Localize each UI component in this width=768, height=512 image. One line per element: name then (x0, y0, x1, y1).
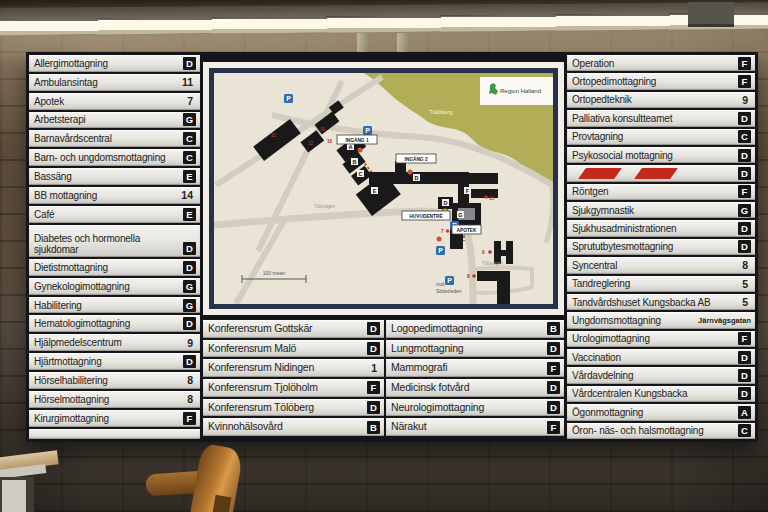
directory-row: BB mottagning14 (29, 187, 200, 204)
directory-row: Vårdcentralen KungsbackaD (567, 386, 755, 402)
house-letter-badge: D (738, 351, 751, 364)
bottom-left-column: Konferensrum GottskärDKonferensrum MalöD… (203, 320, 384, 436)
house-letter-badge: E (183, 170, 196, 183)
directory-row: VårdavdelningD (567, 367, 755, 383)
house-letter-badge: C (738, 424, 751, 437)
house-letter-badge: B (367, 421, 380, 434)
directory-row: Konferensrum TölöbergD (203, 399, 384, 417)
location-badge: 8 (187, 374, 196, 386)
house-letter-badge: D (183, 355, 196, 368)
house-letter-badge: D (183, 242, 196, 255)
svg-text:HUVUDENTRÉ: HUVUDENTRÉ (409, 212, 443, 219)
street-label: Tölövägen (482, 261, 504, 266)
directory-row: OrtopedimottagningF (567, 73, 755, 89)
entry-label: Ögonmottagning (572, 407, 738, 418)
svg-text:G: G (458, 212, 462, 218)
directory-row: RöntgenF (567, 184, 755, 200)
directory-row: Barn- och ungdomsmottagningC (29, 149, 200, 166)
entry-label: Ortopedimottagning (572, 76, 738, 87)
svg-text:P: P (447, 277, 452, 284)
entry-label: Diabetes och hormonella sjukdomar (34, 233, 183, 255)
house-letter-badge: D (738, 240, 751, 253)
entry-label: Medicinsk fotvård (391, 382, 547, 394)
entry-label: Tandvårdshuset Kungsbacka AB (572, 297, 742, 308)
entry-label: Barnavårdscentral (34, 133, 183, 144)
directory-row: ÖgonmottagningA (567, 404, 755, 420)
entrance1-label: INGÅNG 1 (337, 135, 377, 144)
entry-label: Ambulansintag (34, 77, 182, 88)
location-badge: 14 (181, 189, 196, 201)
house-letter-badge: D (738, 167, 751, 180)
location-badge: 8 (742, 259, 751, 271)
entry-label: Mammografi (391, 362, 547, 374)
entry-label: Syncentral (572, 260, 742, 271)
house-letter-badge: D (183, 57, 196, 70)
entry-label: BB mottagning (34, 190, 181, 201)
entry-label: Hjärtmottagning (34, 356, 183, 367)
location-badge: 5 (742, 278, 751, 290)
location-badge: 1 (371, 362, 380, 374)
entrance2-label: INGÅNG 2 (396, 154, 436, 163)
directory-row: D (567, 165, 755, 181)
house-letter-badge: F (183, 412, 196, 425)
house-letter-badge: G (183, 280, 196, 293)
directory-row: Palliativa konsultteametD (567, 110, 755, 126)
entry-label: Vårdavdelning (572, 370, 738, 381)
svg-text:11: 11 (271, 133, 276, 138)
pharmacy-marker: 7 (441, 229, 444, 234)
directory-row: ArbetsterapiG (29, 112, 200, 129)
house-letter-badge: F (738, 57, 751, 70)
directory-row: Konferensrum MalöD (203, 340, 384, 358)
house-letter-badge: D (738, 387, 751, 400)
logo-text: Region Halland (500, 88, 541, 94)
location-badge: 7 (187, 95, 196, 107)
directory-row: MammografiF (386, 359, 564, 377)
entry-label: Café (34, 209, 183, 220)
entry-label: Neurologimottagning (391, 402, 547, 414)
entry-label: Sjukgymnastik (572, 205, 738, 216)
house-letter-badge: D (738, 149, 751, 162)
directory-row: Hjälpmedelscentrum9 (29, 334, 200, 351)
house-letter-badge: C (183, 132, 196, 145)
directory-row: ProvtagningC (567, 129, 755, 145)
entry-label: Lungmottagning (391, 343, 547, 355)
house-letter-badge: G (738, 204, 751, 217)
directory-row: NeurologimottagningD (386, 399, 564, 417)
svg-text:P: P (286, 95, 291, 102)
directory-row: Syncentral8 (567, 257, 755, 273)
scale-label: 100 meter (263, 270, 286, 276)
entry-label: Barn- och ungdomsmottagning (34, 152, 183, 163)
svg-text:E: E (373, 188, 377, 194)
directory-row: SjukgymnastikG (567, 202, 755, 218)
directory-row: VaccinationD (567, 349, 755, 365)
directory-row: UrologimottagningF (567, 331, 755, 347)
house-letter-badge: D (183, 317, 196, 330)
house-letter-badge: F (738, 75, 751, 88)
site-map: A B C E D F D G P P P P (214, 73, 553, 304)
location-badge: 9 (187, 337, 196, 349)
house-letter-badge: F (367, 381, 380, 394)
svg-text:12: 12 (308, 141, 314, 146)
directory-row: OperationF (567, 55, 755, 71)
directory-row: Diabetes och hormonella sjukdomarD (29, 225, 200, 257)
directory-row: KvinnohälsovårdB (203, 418, 384, 436)
location-badge: 9 (742, 94, 751, 106)
directory-row: Medicinsk fotvårdD (386, 379, 564, 397)
entry-label: Bassäng (34, 171, 183, 182)
svg-text:15: 15 (489, 196, 495, 201)
entry-label: Logopedimottagning (391, 323, 547, 335)
house-letter-badge: D (738, 112, 751, 125)
directory-row: Tandreglering5 (567, 276, 755, 292)
entry-label: Psykosocial mottagning (572, 150, 738, 161)
directory-row: Konferensrum GottskärD (203, 320, 384, 338)
directory-row: Ortopedteknik9 (567, 92, 755, 108)
entry-label: Ungdomsmottagning (572, 315, 698, 326)
left-column: AllergimottagningDAmbulansintag11Apotek7… (29, 55, 200, 439)
hill-label: Tölöberg (429, 109, 453, 115)
house-letter-badge: D (547, 342, 560, 355)
entry-label: Röntgen (572, 186, 738, 197)
directory-row: Ambulansintag11 (29, 74, 200, 91)
region-halland-logo: Region Halland (480, 77, 553, 105)
svg-text:APOTEK: APOTEK (457, 228, 478, 233)
entry-label: Arbetsterapi (34, 114, 183, 125)
entry-label: Öron- näs- och halsmottagning (572, 425, 738, 436)
directory-board: AllergimottagningDAmbulansintag11Apotek7… (26, 52, 758, 442)
house-letter-badge: F (547, 362, 560, 375)
entry-label: Konferensrum Nidingen (208, 362, 371, 374)
svg-text:16: 16 (327, 139, 333, 144)
house-letter-badge: E (183, 208, 196, 221)
pharmacy-label: APOTEK (452, 225, 481, 234)
hazard-stripes (634, 168, 678, 179)
location-badge: 11 (182, 76, 196, 88)
hazard-stripes (578, 168, 622, 179)
entry-label: Dietistmottagning (34, 262, 183, 273)
directory-row: UngdomsmottagningJärnvägsgatan (567, 312, 755, 328)
entry-label: Vaccination (572, 352, 738, 363)
house-letter-badge: D (183, 261, 196, 274)
entry-label: Operation (572, 58, 738, 69)
svg-text:B: B (353, 159, 357, 165)
entry-label: Ortopedteknik (572, 94, 742, 105)
house-letter-badge: D (367, 322, 380, 335)
directory-row (29, 429, 200, 439)
entry-label: Hematologimottagning (34, 318, 183, 329)
directory-row: SjukhusadministrationenD (567, 220, 755, 236)
entry-label: Närakut (391, 421, 547, 433)
house-letter-badge: D (547, 401, 560, 414)
house-letter-badge: G (183, 299, 196, 312)
directory-row: HjärtmottagningD (29, 353, 200, 370)
house-letter-badge: C (738, 130, 751, 143)
svg-text:INGÅNG 1: INGÅNG 1 (345, 137, 369, 143)
directory-row: Apotek7 (29, 93, 200, 110)
entry-label: Konferensrum Tjolöholm (208, 382, 367, 394)
location-badge: 8 (187, 393, 196, 405)
house-letter-badge: F (738, 185, 751, 198)
entry-label: Konferensrum Malö (208, 343, 367, 355)
entry-label: Gynekologimottagning (34, 281, 183, 292)
svg-text:D: D (444, 200, 448, 206)
svg-text:9: 9 (482, 250, 485, 255)
svg-text:10: 10 (320, 127, 326, 132)
svg-text:C: C (359, 171, 363, 177)
house-letter-badge: C (183, 151, 196, 164)
svg-text:P: P (365, 127, 370, 134)
svg-text:P: P (438, 247, 443, 254)
house-letter-badge: F (547, 421, 560, 434)
entry-label: Tandreglering (572, 278, 742, 289)
entry-label: Sprututbytesmottagning (572, 241, 738, 252)
directory-row: Konferensrum Nidingen1 (203, 359, 384, 377)
house-letter-badge: G (183, 113, 196, 126)
directory-row: AllergimottagningD (29, 55, 200, 72)
house-letter-badge: F (738, 332, 751, 345)
entry-label: Apotek (34, 96, 187, 107)
directory-row: SprututbytesmottagningD (567, 239, 755, 255)
entry-label: Allergimottagning (34, 58, 183, 69)
svg-text:INGÅNG 2: INGÅNG 2 (404, 156, 428, 162)
street-label: Tölövägen (314, 204, 336, 209)
directory-row: LungmottagningD (386, 340, 564, 358)
entry-label: Habilitering (34, 300, 183, 311)
entry-label: Hjälpmedelscentrum (34, 337, 187, 348)
svg-text:D: D (415, 175, 419, 181)
house-letter-badge: B (547, 322, 560, 335)
house-letter-badge: D (367, 401, 380, 414)
location-badge: 5 (742, 296, 751, 308)
house-letter-badge: D (738, 222, 751, 235)
entry-label: Hörselhabilitering (34, 375, 187, 386)
directory-row: Hörselhabilitering8 (29, 372, 200, 389)
table-drawer (2, 480, 26, 512)
directory-row: Konferensrum TjolöholmF (203, 379, 384, 397)
directory-row: BarnavårdscentralC (29, 130, 200, 147)
directory-row: NärakutF (386, 418, 564, 436)
house-letter-badge: D (367, 342, 380, 355)
direction-label: Söderleden (436, 288, 462, 294)
location-badge: Järnvägsgatan (698, 316, 751, 325)
directory-row: Hörselmottagning8 (29, 391, 200, 408)
entry-label: Kvinnohälsovård (208, 421, 367, 433)
site-map-panel: A B C E D F D G P P P P (203, 62, 564, 315)
directory-row: DietistmottagningD (29, 259, 200, 276)
electrical-box (688, 2, 734, 27)
entry-label: Vårdcentralen Kungsbacka (572, 388, 738, 399)
direction-label: mot (436, 281, 445, 287)
right-column: OperationFOrtopedimottagningFOrtopedtekn… (567, 55, 755, 439)
directory-row: BassängE (29, 168, 200, 185)
entry-label: Hörselmottagning (34, 394, 187, 405)
entry-label: Kirurgimottagning (34, 413, 183, 424)
entry-label: Palliativa konsultteamet (572, 113, 738, 124)
directory-row: HabiliteringG (29, 297, 200, 314)
entry-label: Provtagning (572, 131, 738, 142)
entry-label: Konferensrum Gottskär (208, 323, 367, 335)
directory-row: GynekologimottagningG (29, 278, 200, 295)
photo-scene: AllergimottagningDAmbulansintag11Apotek7… (0, 0, 768, 512)
bottom-right-column: LogopedimottagningBLungmottagningDMammog… (386, 320, 564, 436)
entry-label: Urologimottagning (572, 333, 738, 344)
house-letter-badge: D (547, 381, 560, 394)
directory-row: Psykosocial mottagningD (567, 147, 755, 163)
directory-row: HematologimottagningD (29, 315, 200, 332)
house-letter-badge: A (738, 406, 751, 419)
entry-label: Sjukhusadministrationen (572, 223, 738, 234)
directory-row: CaféE (29, 206, 200, 223)
directory-row: KirurgimottagningF (29, 410, 200, 427)
directory-row: Öron- näs- och halsmottagningC (567, 423, 755, 439)
directory-row: LogopedimottagningB (386, 320, 564, 338)
site-map-frame: A B C E D F D G P P P P (209, 68, 558, 309)
house-letter-badge: D (738, 369, 751, 382)
main-entrance-label: HUVUDENTRÉ (402, 211, 450, 220)
entry-label: Konferensrum Tölöberg (208, 402, 367, 414)
chair-leg (213, 495, 232, 512)
directory-row: Tandvårdshuset Kungsbacka AB5 (567, 294, 755, 310)
